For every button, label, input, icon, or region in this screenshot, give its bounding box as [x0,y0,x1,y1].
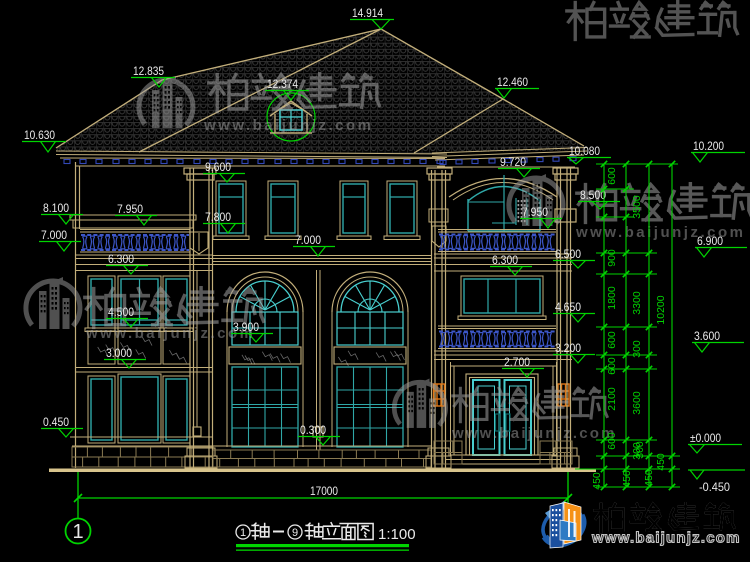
svg-text:9: 9 [292,527,298,539]
svg-text:3600: 3600 [631,391,643,415]
svg-text:300: 300 [634,441,646,459]
svg-text:4.500: 4.500 [108,305,134,319]
svg-text:600: 600 [606,167,618,185]
svg-text:12.460: 12.460 [497,75,528,89]
svg-text:2.700: 2.700 [504,355,530,369]
svg-text:600: 600 [606,357,618,375]
svg-text:6.300: 6.300 [492,253,518,267]
svg-text:3300: 3300 [631,291,643,315]
svg-text:±0.000: ±0.000 [690,431,721,445]
svg-text:3500: 3500 [631,195,643,219]
svg-text:1:100: 1:100 [378,526,416,543]
svg-text:1: 1 [72,521,83,543]
svg-text:6.300: 6.300 [108,252,134,266]
svg-text:450: 450 [621,470,633,488]
svg-text:-0.450: -0.450 [699,480,730,494]
svg-text:7.950: 7.950 [117,202,143,216]
svg-text:900: 900 [606,249,618,267]
svg-text:0.300: 0.300 [300,423,326,437]
svg-text:450: 450 [655,453,667,471]
svg-text:17000: 17000 [310,484,338,498]
svg-text:6.500: 6.500 [555,247,581,261]
svg-text:3.000: 3.000 [106,346,132,360]
svg-text:300: 300 [631,340,643,358]
svg-text:2100: 2100 [606,387,618,411]
svg-text:6.900: 6.900 [697,234,723,248]
svg-text:3.600: 3.600 [694,329,720,343]
svg-text:7.000: 7.000 [295,233,321,247]
svg-text:www.baijunjz.com: www.baijunjz.com [85,325,255,342]
svg-text:10200: 10200 [655,295,667,324]
svg-text:www.baijunjz.com: www.baijunjz.com [591,530,741,547]
svg-text:10.200: 10.200 [693,139,724,153]
svg-text:8.100: 8.100 [43,201,69,215]
svg-text:9.600: 9.600 [205,160,231,174]
svg-text:www.baijunjz.com: www.baijunjz.com [203,117,373,134]
svg-text:3.200: 3.200 [555,341,581,355]
svg-text:3.900: 3.900 [233,320,259,334]
svg-text:www.baijunjz.com: www.baijunjz.com [451,425,617,442]
svg-text:10.080: 10.080 [569,144,600,158]
svg-text:450: 450 [591,472,603,490]
svg-text:7.950: 7.950 [522,205,548,219]
svg-text:7.800: 7.800 [205,210,231,224]
svg-text:12.374: 12.374 [267,77,298,91]
svg-text:600: 600 [606,432,618,450]
svg-text:9.720: 9.720 [500,155,526,169]
svg-text:7.000: 7.000 [41,228,67,242]
svg-text:10.630: 10.630 [24,128,55,142]
svg-text:0.450: 0.450 [43,415,69,429]
svg-text:1800: 1800 [606,286,618,310]
svg-text:1: 1 [240,527,246,539]
svg-text:4.650: 4.650 [555,300,581,314]
svg-text:14.914: 14.914 [352,6,383,20]
svg-text:12.835: 12.835 [133,64,164,78]
svg-text:600: 600 [606,331,618,349]
svg-text:450: 450 [643,469,655,487]
